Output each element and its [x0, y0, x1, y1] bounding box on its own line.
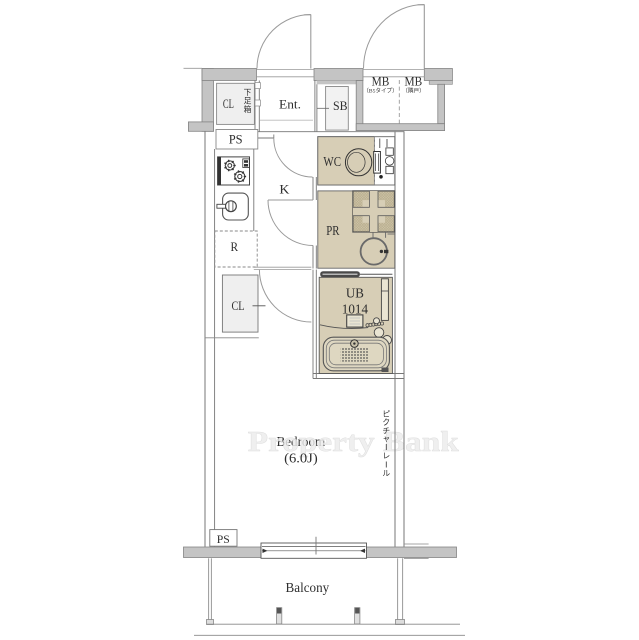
svg-text:R: R	[231, 239, 239, 254]
svg-text:（B5タイプ）: （B5タイプ）	[363, 86, 398, 94]
svg-text:（隣戸）: （隣戸）	[402, 86, 424, 94]
svg-text:Balcony: Balcony	[286, 581, 330, 596]
svg-text:MB: MB	[372, 73, 390, 88]
svg-text:レ: レ	[382, 452, 390, 461]
svg-text:PS: PS	[229, 132, 243, 146]
svg-text:(6.0J): (6.0J)	[284, 451, 318, 466]
svg-text:Ent.: Ent.	[279, 97, 301, 112]
svg-text:WC: WC	[323, 154, 341, 169]
svg-text:Property Bank: Property Bank	[248, 427, 459, 458]
svg-text:ル: ル	[382, 469, 390, 478]
svg-text:箱: 箱	[244, 104, 252, 114]
svg-text:K: K	[279, 181, 290, 196]
svg-text:PS: PS	[217, 532, 230, 546]
svg-text:UB: UB	[346, 285, 364, 300]
svg-text:PR: PR	[326, 223, 339, 238]
svg-text:CL: CL	[232, 298, 245, 313]
svg-text:SB: SB	[333, 98, 348, 113]
svg-text:CL: CL	[223, 96, 234, 111]
svg-text:ャ: ャ	[382, 434, 390, 443]
svg-text:MB: MB	[405, 73, 423, 88]
